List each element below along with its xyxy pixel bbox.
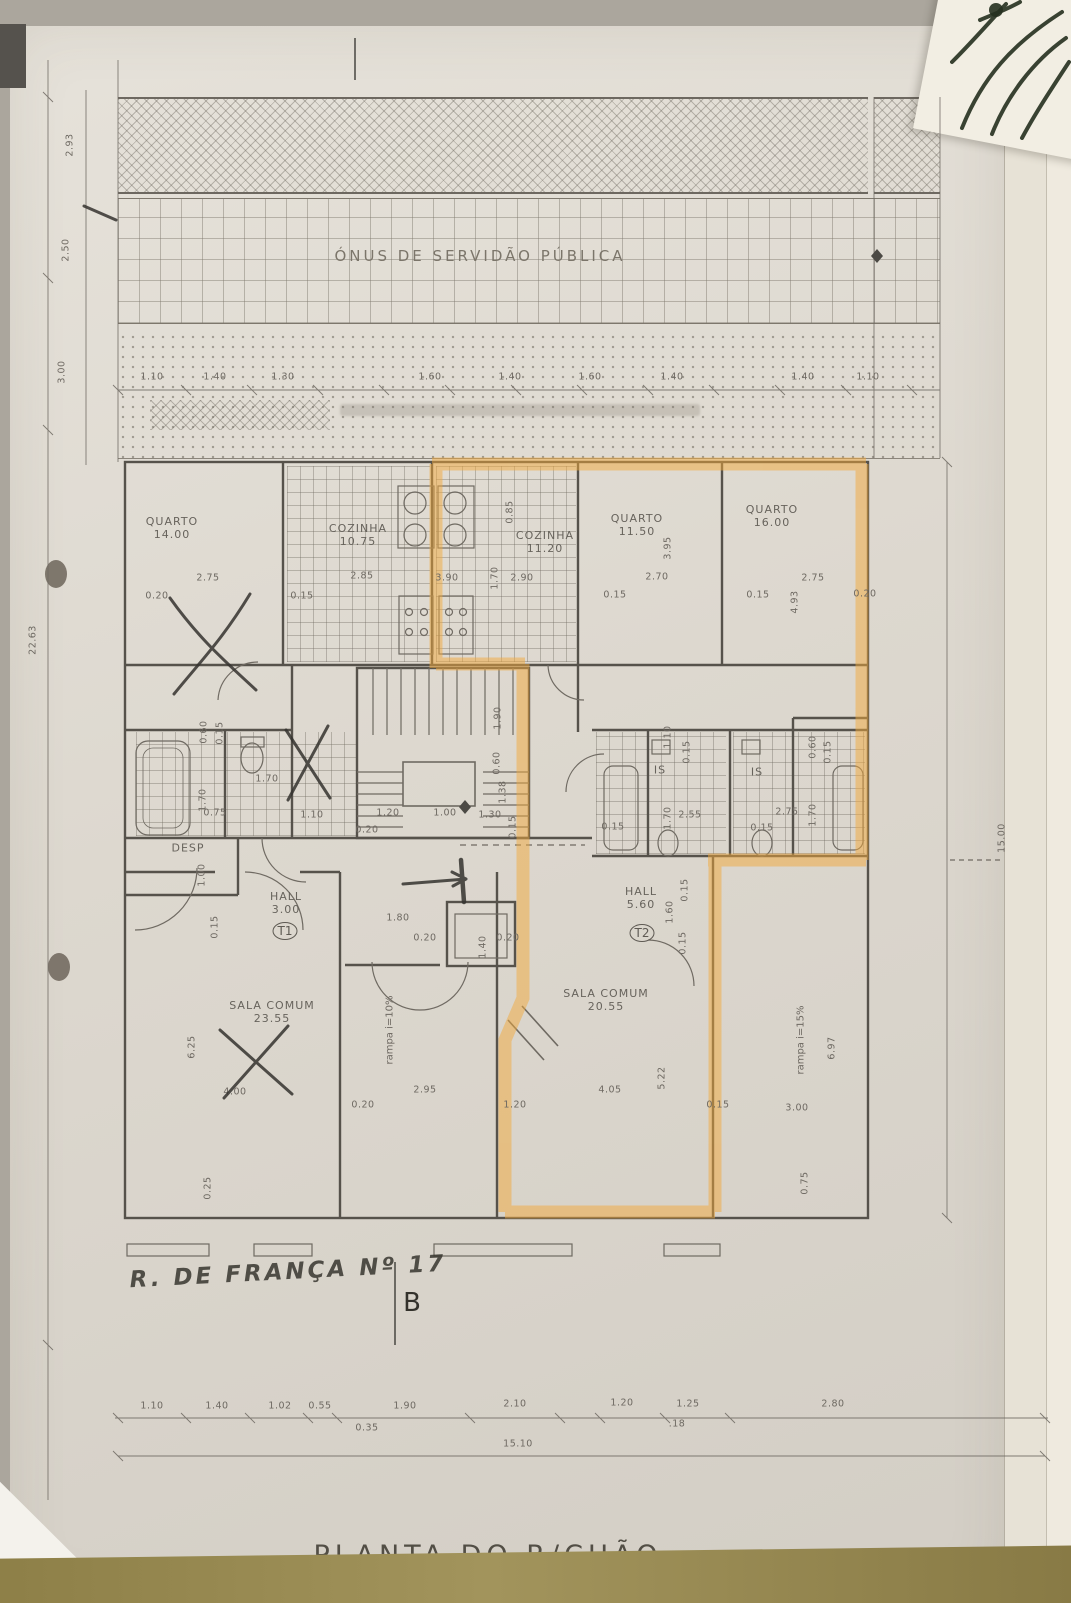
pencil-marks <box>0 0 1071 1603</box>
plant-scribble <box>950 0 1071 140</box>
scanned-floor-plan-photo: ÓNUS DE SERVIDÃO PÚBLICA R. DE FRANÇA Nº… <box>0 0 1071 1603</box>
